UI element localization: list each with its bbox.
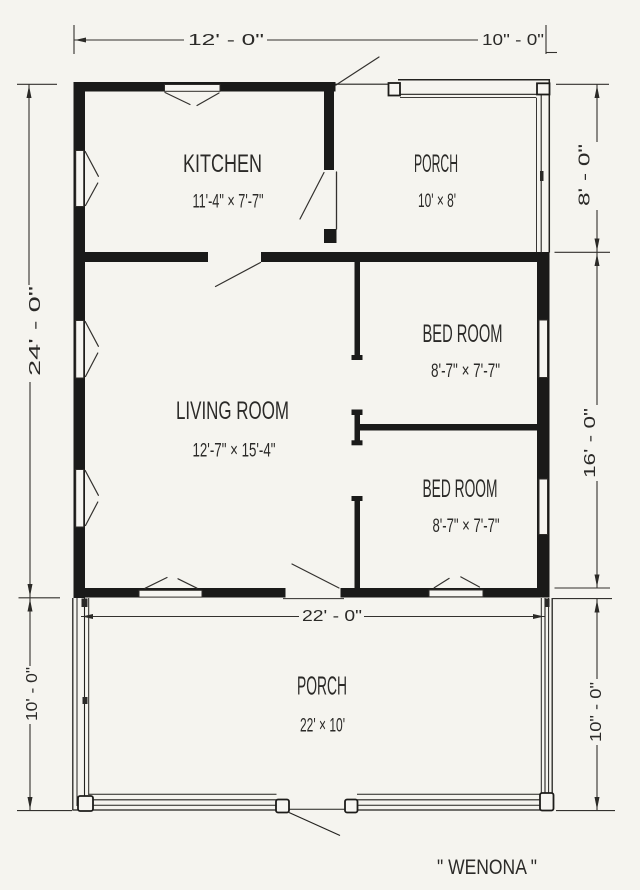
svg-text:12' - 0": 12' - 0"	[188, 32, 264, 49]
svg-text:PORCH: PORCH	[414, 150, 458, 178]
svg-text:12'-7" × 15'-4": 12'-7" × 15'-4"	[193, 441, 276, 462]
svg-text:" WENONA ": " WENONA "	[437, 856, 537, 879]
svg-text:22' × 10': 22' × 10'	[300, 716, 345, 737]
svg-text:8'-7" × 7'-7": 8'-7" × 7'-7"	[431, 361, 500, 382]
svg-text:KITCHEN: KITCHEN	[183, 150, 262, 178]
svg-text:PORCH: PORCH	[297, 671, 347, 701]
svg-text:10" - 0": 10" - 0"	[588, 682, 605, 742]
svg-text:10' × 8': 10' × 8'	[418, 191, 456, 212]
svg-text:24' - 0": 24' - 0"	[27, 286, 44, 376]
svg-text:10" - 0": 10" - 0"	[482, 32, 544, 49]
svg-text:BED ROOM: BED ROOM	[423, 475, 498, 503]
svg-text:11'-4" × 7'-7": 11'-4" × 7'-7"	[193, 192, 264, 213]
svg-text:LIVING ROOM: LIVING ROOM	[176, 397, 289, 425]
svg-text:8'-7" × 7'-7": 8'-7" × 7'-7"	[433, 516, 500, 537]
svg-text:8' - 0": 8' - 0"	[577, 144, 594, 206]
svg-text:22' - 0": 22' - 0"	[302, 608, 362, 625]
svg-text:16' - 0": 16' - 0"	[582, 408, 599, 478]
svg-text:BED ROOM: BED ROOM	[423, 320, 503, 348]
svg-text:10' - 0": 10' - 0"	[24, 667, 41, 721]
